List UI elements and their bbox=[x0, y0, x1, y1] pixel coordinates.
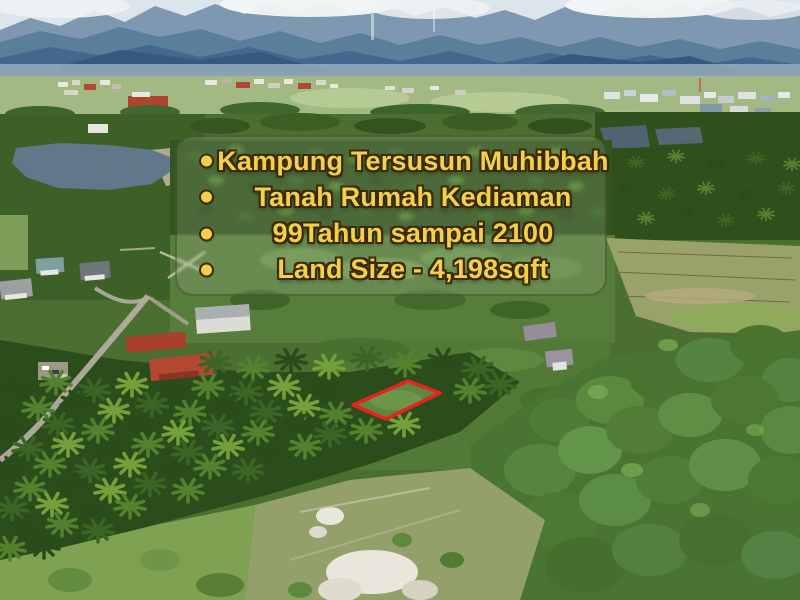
aerial-scene bbox=[0, 0, 800, 600]
info-line: Land Size - 4,198sqft bbox=[277, 256, 548, 283]
info-line: Tanah Rumah Kediaman bbox=[254, 184, 571, 211]
list-item: Tanah Rumah Kediaman bbox=[177, 179, 605, 215]
info-panel: Kampung Tersusun Muhibbah Tanah Rumah Ke… bbox=[175, 135, 607, 296]
bullet-icon bbox=[201, 156, 212, 167]
list-item: 99Tahun sampai 2100 bbox=[177, 216, 605, 252]
info-line: Kampung Tersusun Muhibbah bbox=[217, 148, 609, 175]
aerial-listing-photo: Kampung Tersusun Muhibbah Tanah Rumah Ke… bbox=[0, 0, 800, 600]
bullet-icon bbox=[201, 228, 212, 239]
list-item: Kampung Tersusun Muhibbah bbox=[177, 143, 605, 179]
bullet-icon bbox=[201, 192, 212, 203]
bullet-icon bbox=[201, 264, 212, 275]
info-line: 99Tahun sampai 2100 bbox=[273, 220, 554, 247]
list-item: Land Size - 4,198sqft bbox=[177, 252, 605, 288]
